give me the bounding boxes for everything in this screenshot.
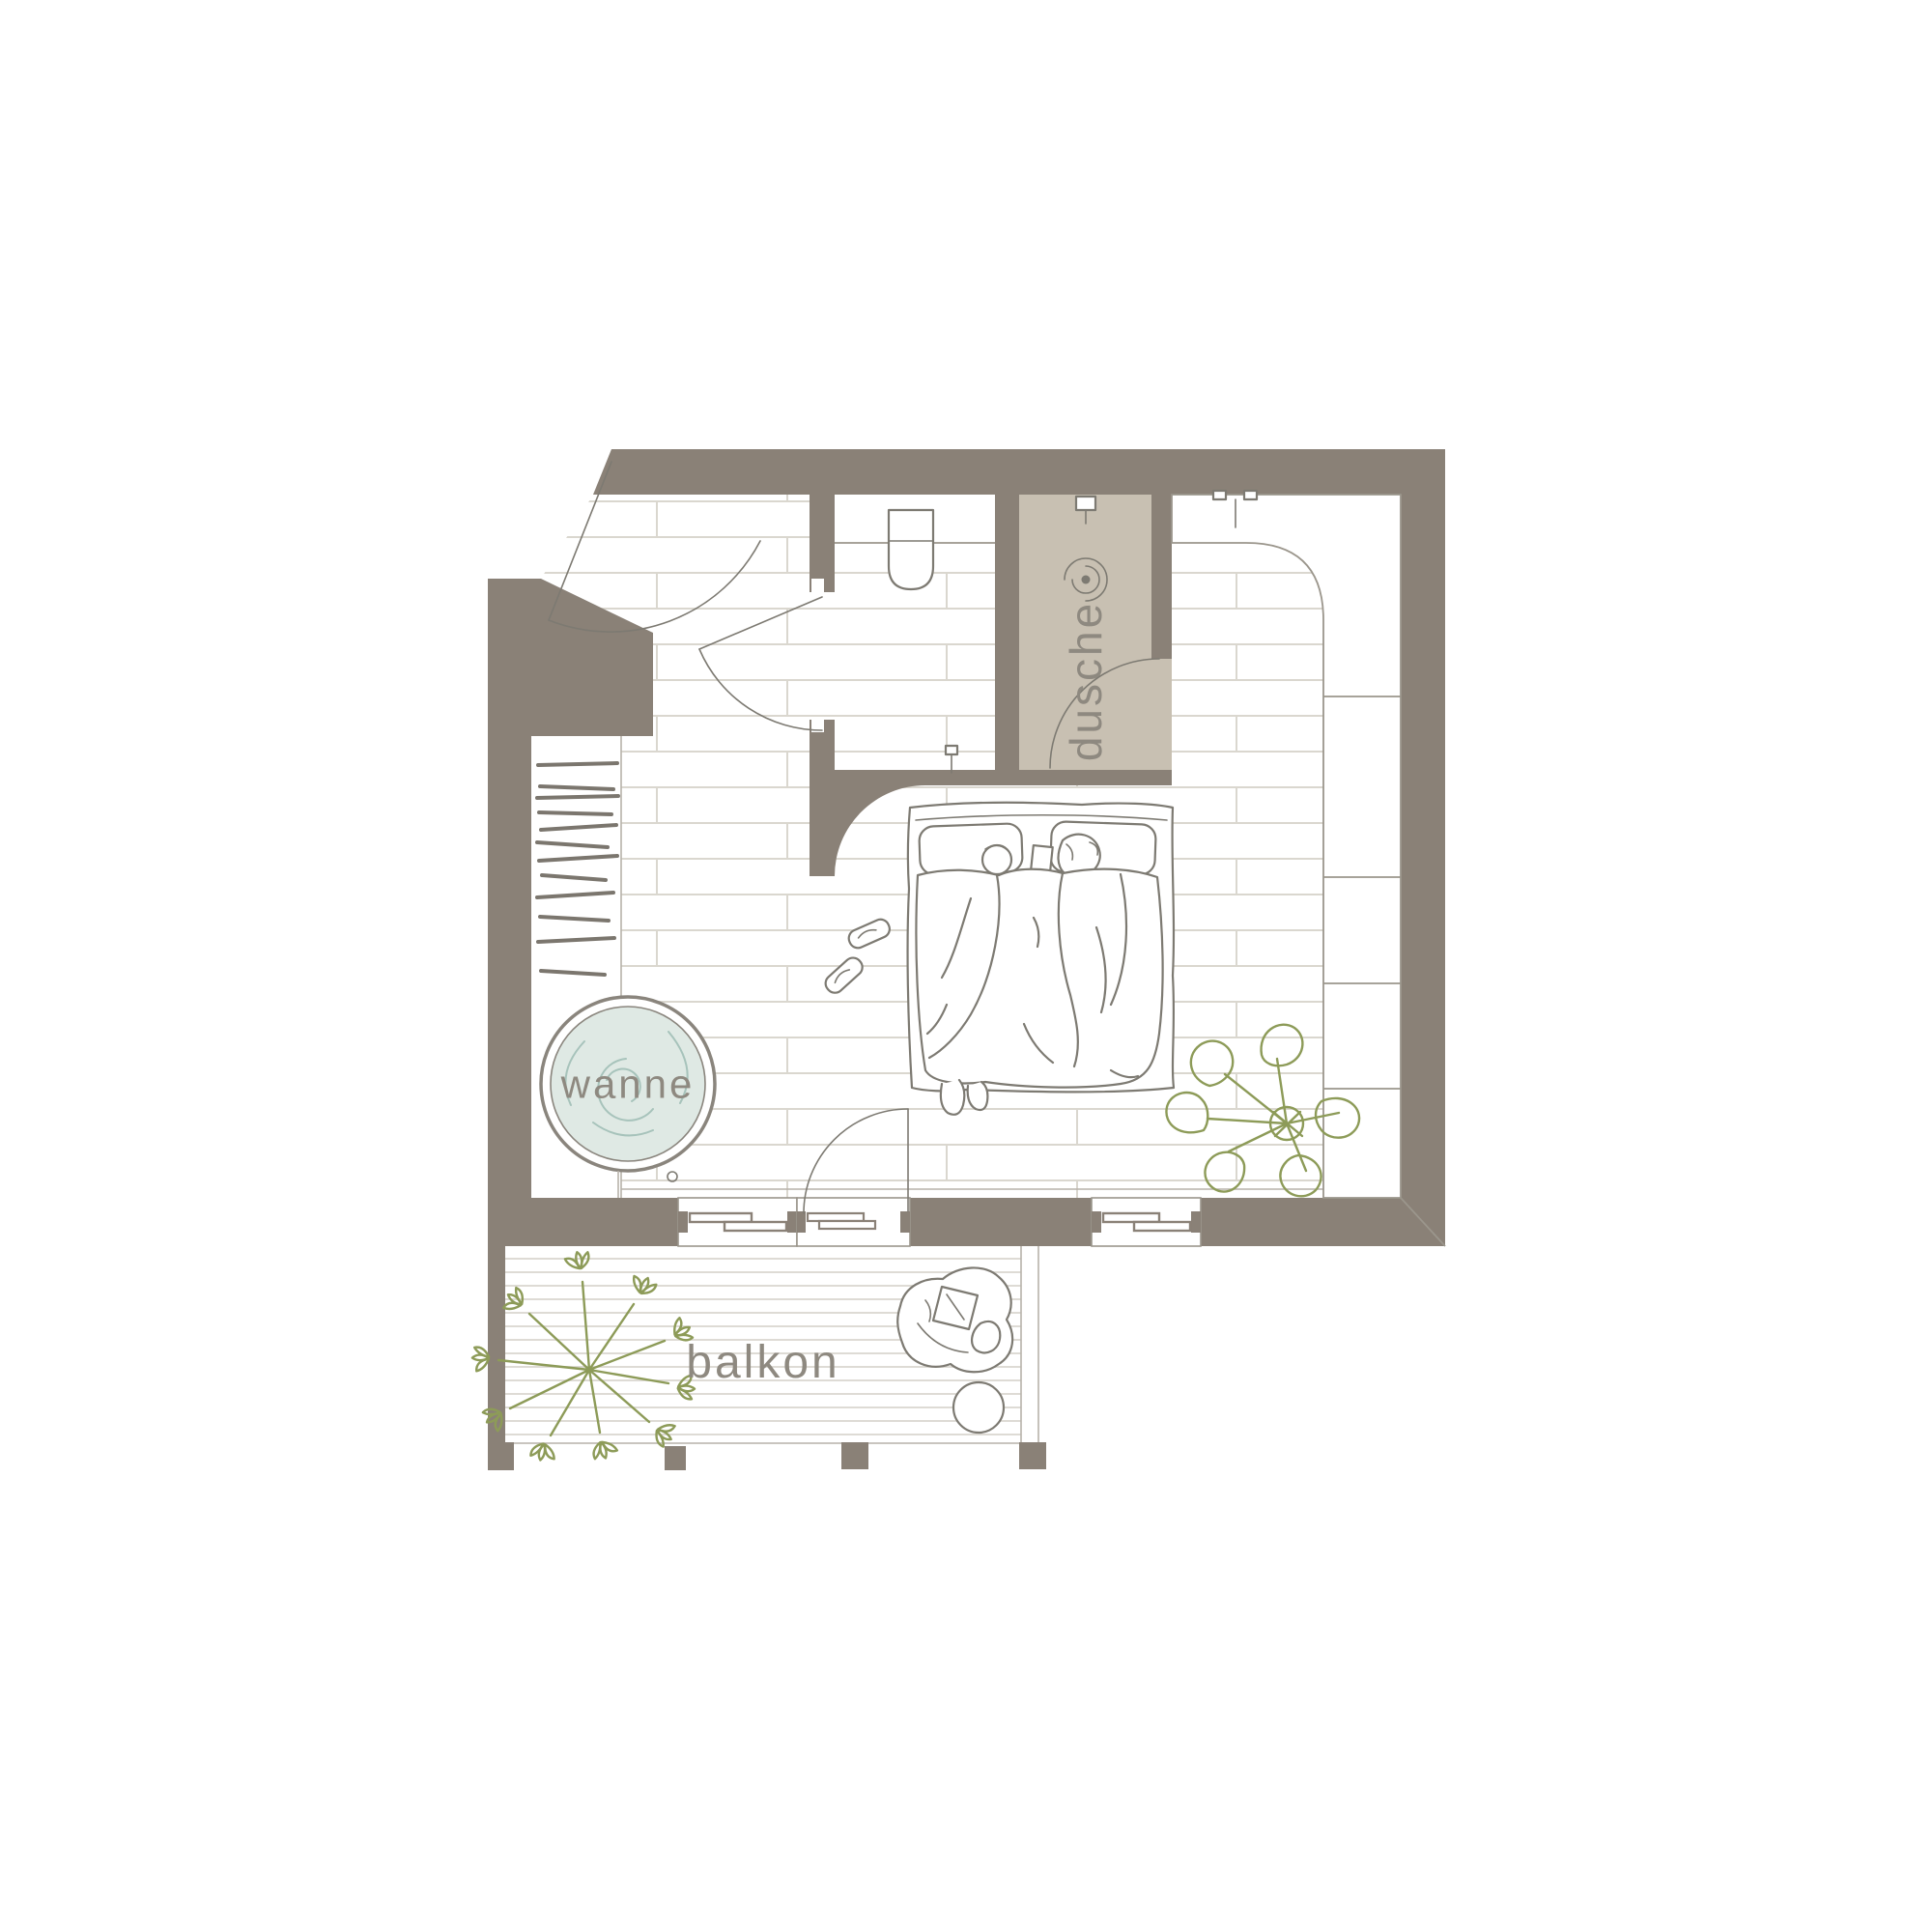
floor-plan-page: dusche [0, 0, 1932, 1932]
wall-left [488, 736, 531, 1198]
window-right [1092, 1198, 1201, 1246]
wall-bottom-mid [910, 1198, 1092, 1246]
balcony-post [1019, 1442, 1046, 1469]
shower-label: dusche [1061, 601, 1111, 761]
wall-wc-divider [810, 495, 835, 592]
balcony-label: balkon [686, 1337, 839, 1388]
side-table [953, 1382, 1004, 1433]
wall-bottom-left [488, 1198, 678, 1246]
balcony-post [665, 1446, 686, 1470]
wall-shower-right [1151, 495, 1172, 659]
bathtub-label: wanne [560, 1062, 696, 1107]
balcony-post [841, 1442, 868, 1469]
wall-top [593, 449, 1445, 495]
duvet [916, 869, 1162, 1115]
shower-head-icon [1076, 497, 1095, 510]
wall-shower-left [995, 495, 1019, 770]
balcony-post [488, 1442, 514, 1470]
bed [908, 803, 1174, 1115]
wall-right [1401, 449, 1445, 1246]
toilet [889, 510, 933, 589]
floor-plan-svg: dusche [0, 0, 1932, 1932]
window-left [678, 1198, 797, 1246]
